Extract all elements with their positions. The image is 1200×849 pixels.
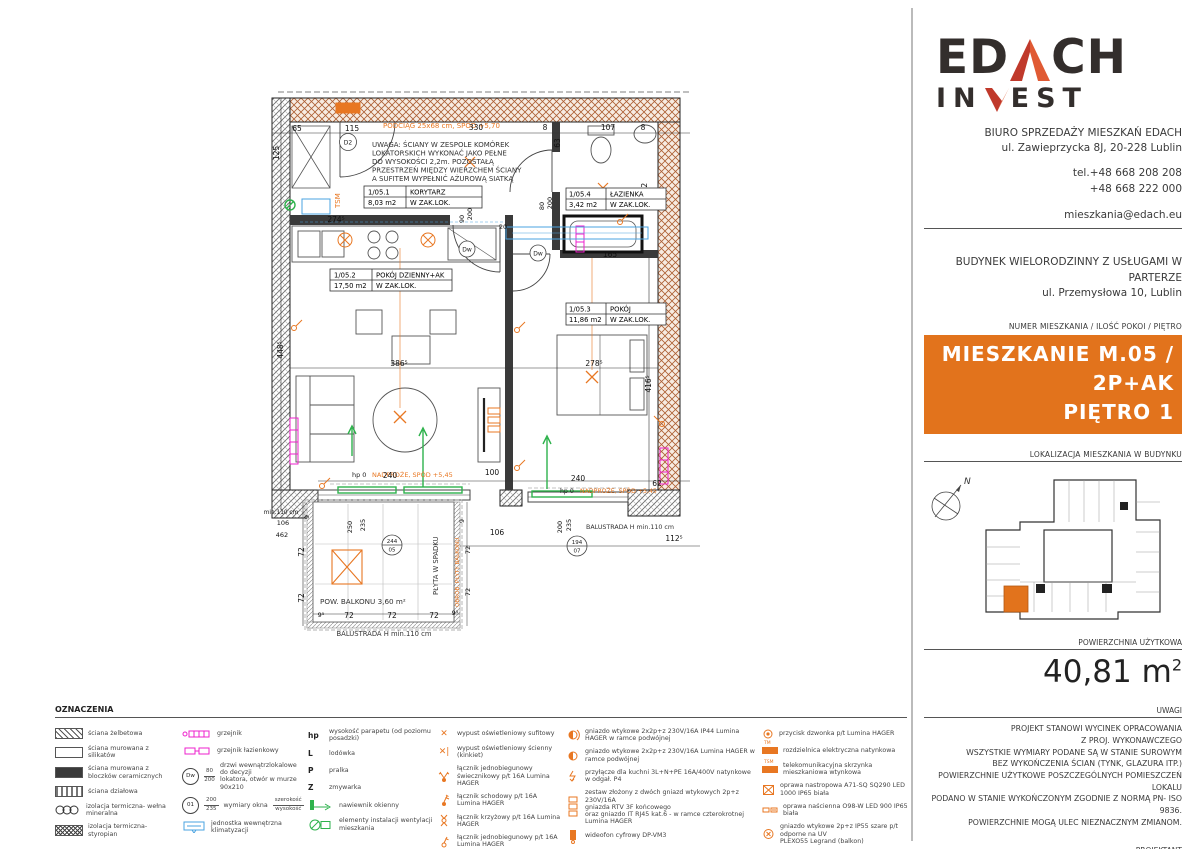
svg-text:240: 240 xyxy=(383,471,398,480)
wall-light-icon: ✕| xyxy=(436,747,452,757)
ceiling-light-icon: ✕ xyxy=(436,729,452,739)
floor-plan-drawing: D2 Dw Dw 244 05 194 07 PODCIĄG 25x68 cm,… xyxy=(0,0,912,700)
area-value: 40,81 m2 xyxy=(924,654,1182,690)
building-address: ul. Przemysłowa 10, Lublin xyxy=(924,286,1182,302)
wall-swatch xyxy=(55,747,83,758)
window-symbol: 01 xyxy=(182,797,199,814)
svg-text:KORYTARZ: KORYTARZ xyxy=(410,189,446,197)
cross-switch-icon xyxy=(436,814,452,827)
phone-number: +48 668 222 000 xyxy=(924,182,1182,197)
building-title: BUDYNEK WIELORODZINNY Z USŁUGAMI W PARTE… xyxy=(924,255,1182,287)
tsm-label: TSM xyxy=(334,193,342,209)
legend-title: OZNACZENIA xyxy=(55,705,907,718)
svg-text:8: 8 xyxy=(543,123,548,132)
svg-text:80: 80 xyxy=(538,202,546,210)
svg-text:9⁵: 9⁵ xyxy=(318,611,325,619)
room-label-korytarz: 1/05.1 KORYTARZ 8,03 m2 W ZAK.LOK. xyxy=(364,186,482,208)
svg-text:416⁵: 416⁵ xyxy=(644,375,653,392)
svg-text:194: 194 xyxy=(572,540,583,546)
legend: OZNACZENIA ściana żelbetowa ściana murow… xyxy=(0,700,912,849)
svg-text:LOKATORSKICH WYKONAĆ JAKO PEŁN: LOKATORSKICH WYKONAĆ JAKO PEŁNE xyxy=(372,149,507,158)
living-furniture xyxy=(296,310,500,462)
lintel-note: NADPROŻE, SPÓD +5,45 xyxy=(580,486,657,495)
logo-v-triangle-icon xyxy=(985,88,1009,112)
sidebar: ED CH IN EST BIURO SPRZEDAŻY MIESZKAŃ ED… xyxy=(924,0,1182,849)
svg-text:9⁵: 9⁵ xyxy=(452,609,459,617)
doorbell-button-icon xyxy=(762,729,774,739)
sheet: D2 Dw Dw 244 05 194 07 PODCIĄG 25x68 cm,… xyxy=(0,0,1200,849)
toilet xyxy=(591,137,611,163)
chandelier-switch-icon xyxy=(436,770,452,783)
balustrade-label: BALUSTRADA H min.110 cm xyxy=(586,524,674,531)
svg-text:11,86 m2: 11,86 m2 xyxy=(569,316,602,324)
svg-text:20: 20 xyxy=(499,223,507,231)
ceiling-luminaire-icon xyxy=(762,784,775,796)
svg-text:72: 72 xyxy=(344,611,354,620)
svg-text:hp 0: hp 0 xyxy=(560,488,574,495)
legend-lighting: ✕wypust oświetleniowy sufitowy ✕|wypust … xyxy=(436,728,562,849)
tv-cabinet xyxy=(478,388,500,462)
slab-slope-label: PŁYTA W SPADKU xyxy=(432,536,440,595)
svg-text:72: 72 xyxy=(464,546,472,554)
chair xyxy=(356,310,382,334)
location-map-zone: N xyxy=(924,472,1182,630)
compass-icon: N xyxy=(932,477,971,520)
svg-text:72: 72 xyxy=(297,547,306,557)
svg-text:A SUFITEM WYPEŁNIĆ AŻUROWĄ SIA: A SUFITEM WYPEŁNIĆ AŻUROWĄ SIATKĄ xyxy=(372,174,513,183)
svg-text:115: 115 xyxy=(345,124,360,133)
unit-caption: NUMER MIESZKANIA / ILOŚĆ POKOI / PIĘTRO xyxy=(924,322,1182,331)
svg-text:72: 72 xyxy=(464,588,472,596)
svg-text:274⁵: 274⁵ xyxy=(327,215,344,224)
outdoor-socket-icon xyxy=(762,828,775,840)
bedroom-furniture xyxy=(557,335,647,415)
svg-text:107: 107 xyxy=(601,123,616,132)
svg-text:72: 72 xyxy=(387,611,397,620)
svg-text:POKÓJ: POKÓJ xyxy=(610,305,631,314)
svg-text:72: 72 xyxy=(297,593,306,603)
notes-caption: UWAGI xyxy=(924,706,1182,718)
svg-text:UWAGA: ŚCIANY W ZESPOLE KOMÓRE: UWAGA: ŚCIANY W ZESPOLE KOMÓREK xyxy=(372,140,510,149)
svg-text:D2: D2 xyxy=(344,140,353,147)
svg-text:448⁵: 448⁵ xyxy=(276,341,285,358)
svg-text:8: 8 xyxy=(641,123,646,132)
ceiling-light-point xyxy=(394,411,406,423)
double-socket-ip44-icon xyxy=(566,729,580,741)
svg-text:3,42 m2: 3,42 m2 xyxy=(569,201,597,209)
balustrade-label: BALUSTRADA H min.110 cm xyxy=(337,630,432,638)
unit-banner: MIESZKANIE M.05 / 2P+AK PIĘTRO 1 xyxy=(924,335,1182,434)
balcony-area-label: POW. BALKONU 3,60 m² xyxy=(320,597,406,606)
svg-text:100: 100 xyxy=(485,468,500,477)
logo-a-triangle-icon xyxy=(1010,39,1050,81)
distribution-board-icon: TM xyxy=(762,747,778,754)
logo-text: ED xyxy=(936,34,1009,81)
sofa xyxy=(296,376,354,462)
svg-text:Dw: Dw xyxy=(533,251,543,258)
wall-luminaire-icon xyxy=(762,806,778,814)
storage-cell xyxy=(292,126,330,188)
office-address: ul. Zawieprzycka 8J, 20-228 Lublin xyxy=(924,141,1182,156)
round-table xyxy=(373,388,437,452)
bed xyxy=(557,335,647,415)
stair-switch-icon xyxy=(436,794,452,807)
svg-text:9: 9 xyxy=(303,515,311,519)
radiator-icon xyxy=(182,729,212,739)
svg-text:POKÓJ DZIENNY+AK: POKÓJ DZIENNY+AK xyxy=(376,271,445,280)
location-caption: LOKALIZACJA MIESZKANIA W BUDYNKU xyxy=(924,450,1182,462)
svg-text:386⁵: 386⁵ xyxy=(390,359,407,368)
svg-text:17,50 m2: 17,50 m2 xyxy=(334,282,367,290)
svg-text:240: 240 xyxy=(571,474,586,483)
svg-text:65: 65 xyxy=(292,124,302,133)
mineral-wool-icon xyxy=(55,805,81,815)
svg-text:165: 165 xyxy=(603,250,618,259)
svg-text:106: 106 xyxy=(490,528,505,537)
edach-logo: ED CH IN EST xyxy=(936,34,1182,112)
svg-text:125: 125 xyxy=(272,146,281,161)
svg-text:W ZAK.LOK.: W ZAK.LOK. xyxy=(410,199,450,207)
svg-text:200: 200 xyxy=(556,521,564,533)
room-label-pokoj-dzienny: 1/05.2 POKÓJ DZIENNY+AK 17,50 m2 W ZAK.L… xyxy=(330,269,452,291)
chair xyxy=(430,310,456,334)
socket-set-tv xyxy=(488,408,500,432)
floor-plan: D2 Dw Dw 244 05 194 07 PODCIĄG 25x68 cm,… xyxy=(0,0,912,700)
logo-text: EST xyxy=(1011,85,1088,112)
svg-text:07: 07 xyxy=(574,549,581,555)
ventilation-icon xyxy=(308,819,334,831)
area-caption: POWIERZCHNIA UŻYTKOWA xyxy=(924,638,1182,650)
office-name: BIURO SPRZEDAŻY MIESZKAŃ EDACH xyxy=(924,126,1182,141)
svg-text:ŁAZIENKA: ŁAZIENKA xyxy=(609,191,644,199)
ac-unit-icon xyxy=(182,821,206,833)
svg-text:90: 90 xyxy=(458,215,466,223)
logo-text: CH xyxy=(1051,34,1127,81)
videophone-icon xyxy=(566,828,580,844)
legend-fixtures: grzejnik grzejnik łazienkowy Dw80200drzw… xyxy=(182,728,304,840)
svg-text:1/05.4: 1/05.4 xyxy=(569,191,591,199)
room-label-lazienka: 1/05.4 ŁAZIENKA 3,42 m2 W ZAK.LOK. xyxy=(566,188,666,210)
radiators xyxy=(290,226,668,484)
phone-number: tel.+48 668 208 208 xyxy=(924,166,1182,181)
telecom-box-icon: TSM xyxy=(762,766,778,773)
ceiling-light-point xyxy=(586,371,598,383)
svg-text:min.110 cm: min.110 cm xyxy=(264,510,299,516)
svg-text:235: 235 xyxy=(565,519,573,531)
legend-misc: przycisk dzwonka p/t Lumina HAGER TMrozd… xyxy=(762,728,908,849)
svg-text:278⁵: 278⁵ xyxy=(585,359,602,368)
location-map: N xyxy=(924,472,1182,630)
svg-text:W ZAK.LOK.: W ZAK.LOK. xyxy=(610,316,650,324)
kitchen-connection-icon xyxy=(566,770,580,782)
single-switch-icon xyxy=(436,835,452,848)
svg-text:W ZAK.LOK.: W ZAK.LOK. xyxy=(610,201,650,209)
svg-text:Dw: Dw xyxy=(462,247,472,254)
rule xyxy=(924,228,1182,229)
svg-text:9: 9 xyxy=(458,519,466,523)
slab-edge-label: OBRÓB. PŁYTY BALKONU xyxy=(454,538,461,607)
svg-text:200: 200 xyxy=(466,208,474,220)
unit-number: MIESZKANIE M.05 / 2P+AK xyxy=(932,340,1174,398)
legend-sockets: gniazdo wtykowe 2x2p+z 230V/16A IP44 Lum… xyxy=(566,728,756,849)
window-vent-icon xyxy=(308,799,334,811)
svg-text:DO WYSOKOŚCI 2,2m. POZOSTAŁĄ: DO WYSOKOŚCI 2,2m. POZOSTAŁĄ xyxy=(372,157,494,166)
wall-swatch xyxy=(55,825,83,836)
svg-text:235: 235 xyxy=(359,519,367,531)
double-socket-icon xyxy=(566,750,580,762)
svg-text:330: 330 xyxy=(469,123,484,132)
svg-text:1/05.1: 1/05.1 xyxy=(368,189,390,197)
svg-text:112⁵: 112⁵ xyxy=(665,534,682,543)
svg-text:72: 72 xyxy=(429,611,439,620)
door-symbol: Dw xyxy=(182,768,199,785)
email: mieszkania@edach.eu xyxy=(924,209,1182,221)
svg-text:1/05.2: 1/05.2 xyxy=(334,272,356,280)
svg-text:462: 462 xyxy=(276,531,288,539)
svg-text:63: 63 xyxy=(553,138,562,148)
svg-text:250: 250 xyxy=(346,521,354,533)
svg-text:N: N xyxy=(964,477,971,487)
pillow xyxy=(630,340,644,372)
room-label-pokoj: 1/05.3 POKÓJ 11,86 m2 W ZAK.LOK. xyxy=(566,303,666,325)
legend-appliances: hpwysokość parapetu (od poziomu posadzki… xyxy=(308,728,434,838)
bathroom-radiator-icon xyxy=(182,746,212,756)
wall-swatch xyxy=(55,767,83,778)
wall-swatch xyxy=(55,728,83,739)
svg-text:106: 106 xyxy=(277,519,289,527)
pillow xyxy=(630,378,644,410)
svg-text:244: 244 xyxy=(387,539,398,545)
logo-text: IN xyxy=(936,85,983,112)
media-socket-set-icon xyxy=(566,796,580,818)
wall-swatch xyxy=(55,786,83,797)
notes: PROJEKT STANOWI WYCINEK OPRACOWANIA Z PR… xyxy=(924,723,1182,828)
svg-text:200: 200 xyxy=(546,197,554,209)
svg-text:8,03 m2: 8,03 m2 xyxy=(368,199,396,207)
svg-text:hp 0: hp 0 xyxy=(352,471,366,479)
svg-text:62: 62 xyxy=(652,479,662,488)
distribution-board xyxy=(336,103,360,113)
vertical-divider xyxy=(911,8,913,841)
svg-text:1/05.3: 1/05.3 xyxy=(569,306,591,314)
svg-text:W ZAK.LOK.: W ZAK.LOK. xyxy=(376,282,416,290)
unit-floor: PIĘTRO 1 xyxy=(932,398,1174,427)
highlighted-unit xyxy=(1004,586,1028,612)
svg-text:05: 05 xyxy=(389,548,396,554)
legend-walls: ściana żelbetowa ściana murowana z silik… xyxy=(55,728,177,844)
svg-text:PRZESTRZEŃ MIĘDZY WIERZCHEM ŚC: PRZESTRZEŃ MIĘDZY WIERZCHEM ŚCIANY xyxy=(372,166,522,175)
